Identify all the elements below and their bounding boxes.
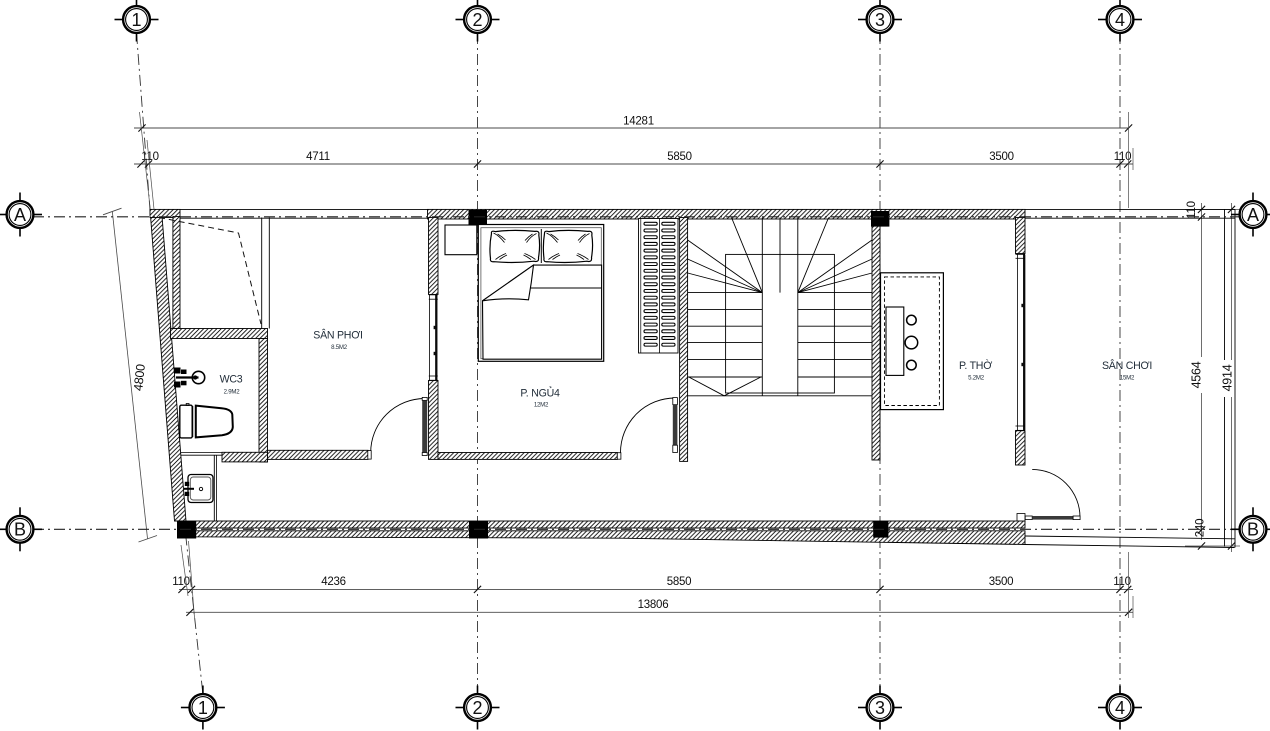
svg-text:4: 4 [1115,10,1125,30]
svg-text:A: A [1247,205,1259,225]
svg-text:WC3: WC3 [220,374,243,386]
svg-text:2.9M2: 2.9M2 [224,389,241,396]
svg-text:15M2: 15M2 [1120,375,1135,382]
svg-text:B: B [14,520,26,540]
svg-text:SÂN CHƠI: SÂN CHƠI [1102,359,1152,372]
svg-text:110: 110 [172,576,190,588]
svg-text:5850: 5850 [667,151,692,163]
svg-text:P. NGỦ4: P. NGỦ4 [520,387,560,400]
svg-text:4: 4 [1115,698,1125,718]
svg-text:3: 3 [875,10,885,30]
svg-text:4711: 4711 [306,151,330,163]
svg-text:1: 1 [131,10,141,30]
svg-text:B: B [1247,520,1259,540]
svg-text:12M2: 12M2 [534,402,549,409]
svg-text:3500: 3500 [989,151,1014,163]
svg-text:P. THỜ: P. THỜ [959,359,992,372]
svg-text:A: A [14,205,26,225]
svg-text:2: 2 [472,10,482,30]
svg-text:2: 2 [472,698,482,718]
svg-text:4800: 4800 [131,363,148,391]
svg-text:1: 1 [198,698,208,718]
svg-text:4236: 4236 [321,576,346,588]
svg-text:3500: 3500 [989,576,1014,588]
svg-text:4564: 4564 [1189,361,1203,388]
svg-text:110: 110 [1186,201,1198,219]
svg-text:110: 110 [1113,576,1131,588]
svg-text:240: 240 [1195,519,1207,537]
svg-text:5.2M2: 5.2M2 [968,375,985,382]
svg-text:SÂN PHƠI: SÂN PHƠI [313,329,362,342]
svg-text:13806: 13806 [638,599,669,611]
svg-text:4914: 4914 [1220,364,1234,391]
svg-text:5850: 5850 [667,576,692,588]
svg-text:8.5M2: 8.5M2 [331,344,348,351]
svg-text:14281: 14281 [623,116,654,128]
svg-text:3: 3 [875,698,885,718]
